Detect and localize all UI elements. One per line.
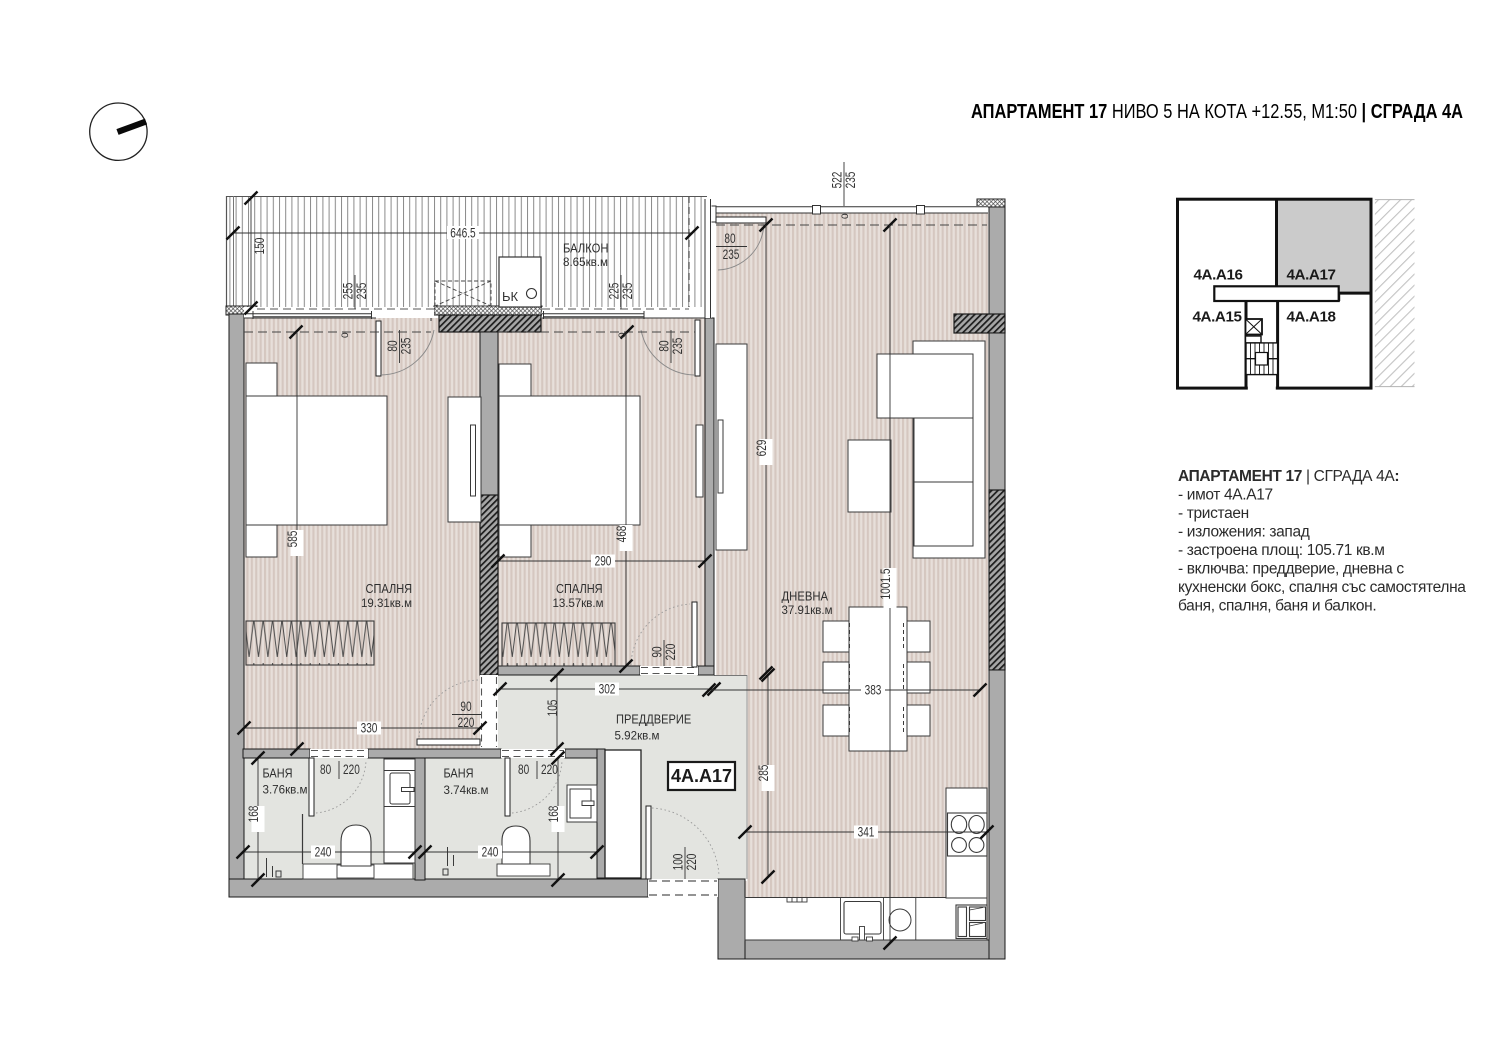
svg-text:13.57кв.м: 13.57кв.м bbox=[553, 596, 604, 610]
svg-text:290: 290 bbox=[595, 554, 612, 569]
svg-text:- включва: преддверие, дневна: - включва: преддверие, дневна с bbox=[1178, 561, 1404, 578]
svg-text:80: 80 bbox=[320, 762, 331, 777]
svg-text:4А.А16: 4А.А16 bbox=[1194, 267, 1243, 284]
svg-text:80: 80 bbox=[518, 762, 529, 777]
svg-text:168: 168 bbox=[546, 806, 561, 823]
svg-text:235: 235 bbox=[670, 338, 685, 355]
svg-text:- изложения: запад: - изложения: запад bbox=[1178, 524, 1310, 541]
svg-text:235: 235 bbox=[399, 338, 414, 355]
svg-text:0: 0 bbox=[340, 332, 350, 338]
svg-text:80: 80 bbox=[724, 231, 735, 246]
svg-text:19.31кв.м: 19.31кв.м bbox=[361, 596, 412, 610]
svg-text:235: 235 bbox=[843, 172, 858, 189]
svg-text:1001.5: 1001.5 bbox=[878, 569, 893, 600]
svg-text:ЬК: ЬК bbox=[502, 289, 519, 304]
svg-text:240: 240 bbox=[315, 845, 332, 860]
svg-text:235: 235 bbox=[354, 283, 369, 300]
svg-text:ДНЕВНА: ДНЕВНА bbox=[782, 589, 829, 604]
svg-text:4А.А18: 4А.А18 bbox=[1287, 309, 1336, 326]
svg-text:0: 0 bbox=[617, 332, 627, 338]
svg-text:220: 220 bbox=[343, 762, 360, 777]
svg-text:8.65кв.м: 8.65кв.м bbox=[563, 255, 608, 269]
svg-text:3.74кв.м: 3.74кв.м bbox=[444, 783, 489, 797]
svg-text:220: 220 bbox=[663, 644, 678, 661]
svg-text:235: 235 bbox=[620, 283, 635, 300]
svg-text:ПРЕДДВЕРИЕ: ПРЕДДВЕРИЕ bbox=[616, 712, 691, 727]
svg-text:АПАРТАМЕНТ 17 | СГРАДА 4А:: АПАРТАМЕНТ 17 | СГРАДА 4А: bbox=[1178, 468, 1399, 485]
svg-text:4А.А17: 4А.А17 bbox=[671, 766, 732, 786]
svg-text:105: 105 bbox=[545, 700, 560, 717]
svg-text:БАНЯ: БАНЯ bbox=[444, 766, 474, 781]
svg-text:220: 220 bbox=[541, 762, 558, 777]
svg-text:- тристаен: - тристаен bbox=[1178, 505, 1249, 522]
svg-text:629: 629 bbox=[754, 440, 769, 457]
svg-text:585: 585 bbox=[285, 531, 300, 548]
svg-text:37.91кв.м: 37.91кв.м bbox=[782, 603, 833, 617]
svg-text:150: 150 bbox=[252, 238, 267, 255]
svg-text:СПАЛНЯ: СПАЛНЯ bbox=[556, 581, 603, 596]
svg-text:0: 0 bbox=[840, 213, 850, 219]
svg-text:- застроена площ: 105.71 кв.м: - застроена площ: 105.71 кв.м bbox=[1178, 542, 1385, 559]
svg-text:5.92кв.м: 5.92кв.м bbox=[615, 729, 660, 743]
svg-text:БАНЯ: БАНЯ bbox=[263, 766, 293, 781]
svg-text:220: 220 bbox=[684, 854, 699, 871]
svg-text:4А.А17: 4А.А17 bbox=[1287, 267, 1336, 284]
svg-text:220: 220 bbox=[458, 715, 475, 730]
svg-text:168: 168 bbox=[246, 806, 261, 823]
svg-text:330: 330 bbox=[361, 721, 378, 736]
svg-text:- имот 4А.А17: - имот 4А.А17 bbox=[1178, 487, 1273, 504]
svg-text:БАЛКОН: БАЛКОН bbox=[563, 241, 609, 256]
svg-text:285: 285 bbox=[756, 765, 771, 782]
svg-text:4А.А15: 4А.А15 bbox=[1193, 309, 1243, 326]
svg-text:баня, спалня, баня и балкон.: баня, спалня, баня и балкон. bbox=[1178, 598, 1376, 615]
svg-text:646.5: 646.5 bbox=[450, 226, 475, 241]
svg-text:3.76кв.м: 3.76кв.м bbox=[263, 783, 308, 797]
svg-text:кухненски бокс, спалня със сам: кухненски бокс, спалня със самостятелна bbox=[1178, 579, 1466, 596]
svg-text:90: 90 bbox=[460, 699, 471, 714]
svg-text:468: 468 bbox=[614, 526, 629, 543]
svg-text:383: 383 bbox=[865, 683, 882, 698]
svg-text:341: 341 bbox=[858, 825, 875, 840]
svg-text:СПАЛНЯ: СПАЛНЯ bbox=[366, 581, 413, 596]
svg-text:240: 240 bbox=[482, 845, 499, 860]
svg-text:235: 235 bbox=[723, 247, 740, 262]
svg-text:АПАРТАМЕНТ 17 НИВО 5 НА КОТА +: АПАРТАМЕНТ 17 НИВО 5 НА КОТА +12.55, М1:… bbox=[971, 101, 1463, 123]
svg-text:302: 302 bbox=[599, 682, 616, 697]
